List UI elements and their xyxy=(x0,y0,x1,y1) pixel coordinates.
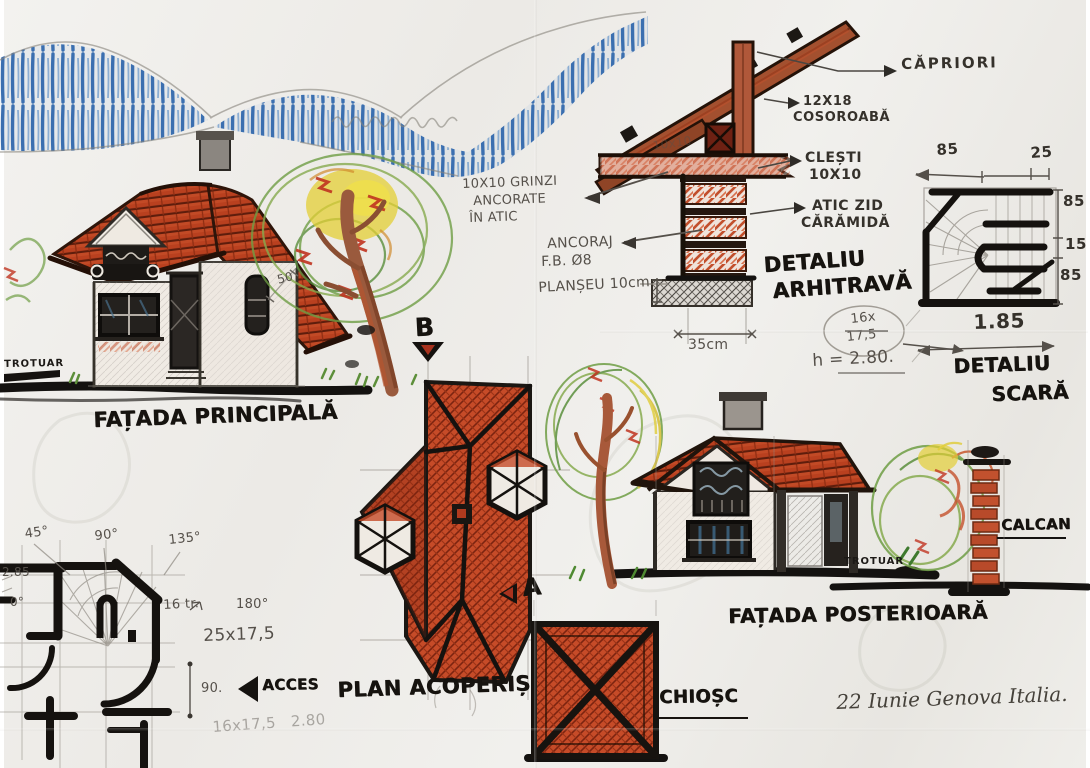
callout-cosoroaba-2: COSOROABĂ xyxy=(793,111,890,124)
acces-label: ACCES xyxy=(262,677,319,693)
height-note: h = 2.80. xyxy=(812,349,895,371)
callout-grinzi-3: ÎN ATIC xyxy=(469,210,518,225)
caption-chiosc: CHIOȘC xyxy=(659,688,738,708)
angle-90: 90° xyxy=(94,527,119,543)
callout-grinzi-1: 10X10 GRINZI xyxy=(462,175,558,192)
section-marker-a: A xyxy=(521,574,542,600)
angle-90-dot: 90. xyxy=(201,682,223,695)
dim-35cm: 35cm xyxy=(688,338,728,352)
callout-cosoroaba-1: 12X18 xyxy=(803,95,852,108)
trotuar-label-right: TROTUAR xyxy=(844,557,904,567)
callout-ancoraj-2: F.B. Ø8 xyxy=(541,253,592,269)
facade-principala-drawing xyxy=(50,131,350,388)
scara-dim-top-right: 25 xyxy=(1030,144,1053,161)
angle-135: 135° xyxy=(168,531,202,548)
drawing-layer xyxy=(0,0,1090,768)
callout-grinzi-2: ANCORATE xyxy=(473,192,546,208)
angle-45: 45° xyxy=(24,525,50,541)
steps-fraction-denominator: 17,5 xyxy=(846,328,877,344)
treads-note: 16 tr. xyxy=(163,597,200,612)
caption-fatada-posterioara: FAȚADA POSTERIOARĂ xyxy=(728,601,988,626)
scara-dim-bottom: 1.85 xyxy=(973,310,1025,332)
floor-plan-drawing xyxy=(0,540,202,768)
callout-ancoraj-1: ANCORAJ xyxy=(547,235,613,252)
trotuar-label-left: TROTUAR xyxy=(4,359,64,370)
callout-clesti-2: 10X10 xyxy=(809,168,862,182)
scara-dim-right-bottom: 85 xyxy=(1060,268,1082,283)
scara-dim-right-top: 85 xyxy=(1063,194,1085,209)
scara-dim-right-mid: 15 xyxy=(1065,237,1087,252)
callout-capriori: CĂPRIORI xyxy=(901,55,998,72)
dim-50: 50 xyxy=(276,270,294,286)
callout-atic-1: ATIC ZID xyxy=(812,199,883,213)
callout-atic-2: CĂRĂMIDĂ xyxy=(801,216,890,230)
angle-180: 180° xyxy=(236,598,269,611)
scara-dim-top-left: 85 xyxy=(936,141,959,158)
callout-clesti-1: CLEȘTI xyxy=(805,151,862,165)
calcan-label: CALCAN xyxy=(1001,517,1071,534)
riser-note: 25x17,5 xyxy=(203,625,275,645)
angle-0: 0° xyxy=(10,596,24,608)
section-marker-b: B xyxy=(414,314,435,340)
steps-fraction-numerator: 16x xyxy=(850,310,876,326)
roof-plan-drawing xyxy=(238,342,570,716)
detaliu-arhitrava-drawing xyxy=(584,22,964,373)
kiosk-drawing xyxy=(534,600,748,756)
sketch-sheet: TROTUAR FAȚADA PRINCIPALĂ 50 B A ACCES P… xyxy=(0,0,1090,768)
caption-detaliu-scara-2: SCARĂ xyxy=(991,381,1069,404)
caption-detaliu-scara-1: DETALIU xyxy=(953,353,1051,377)
dim-285: 2.85 xyxy=(2,566,30,578)
